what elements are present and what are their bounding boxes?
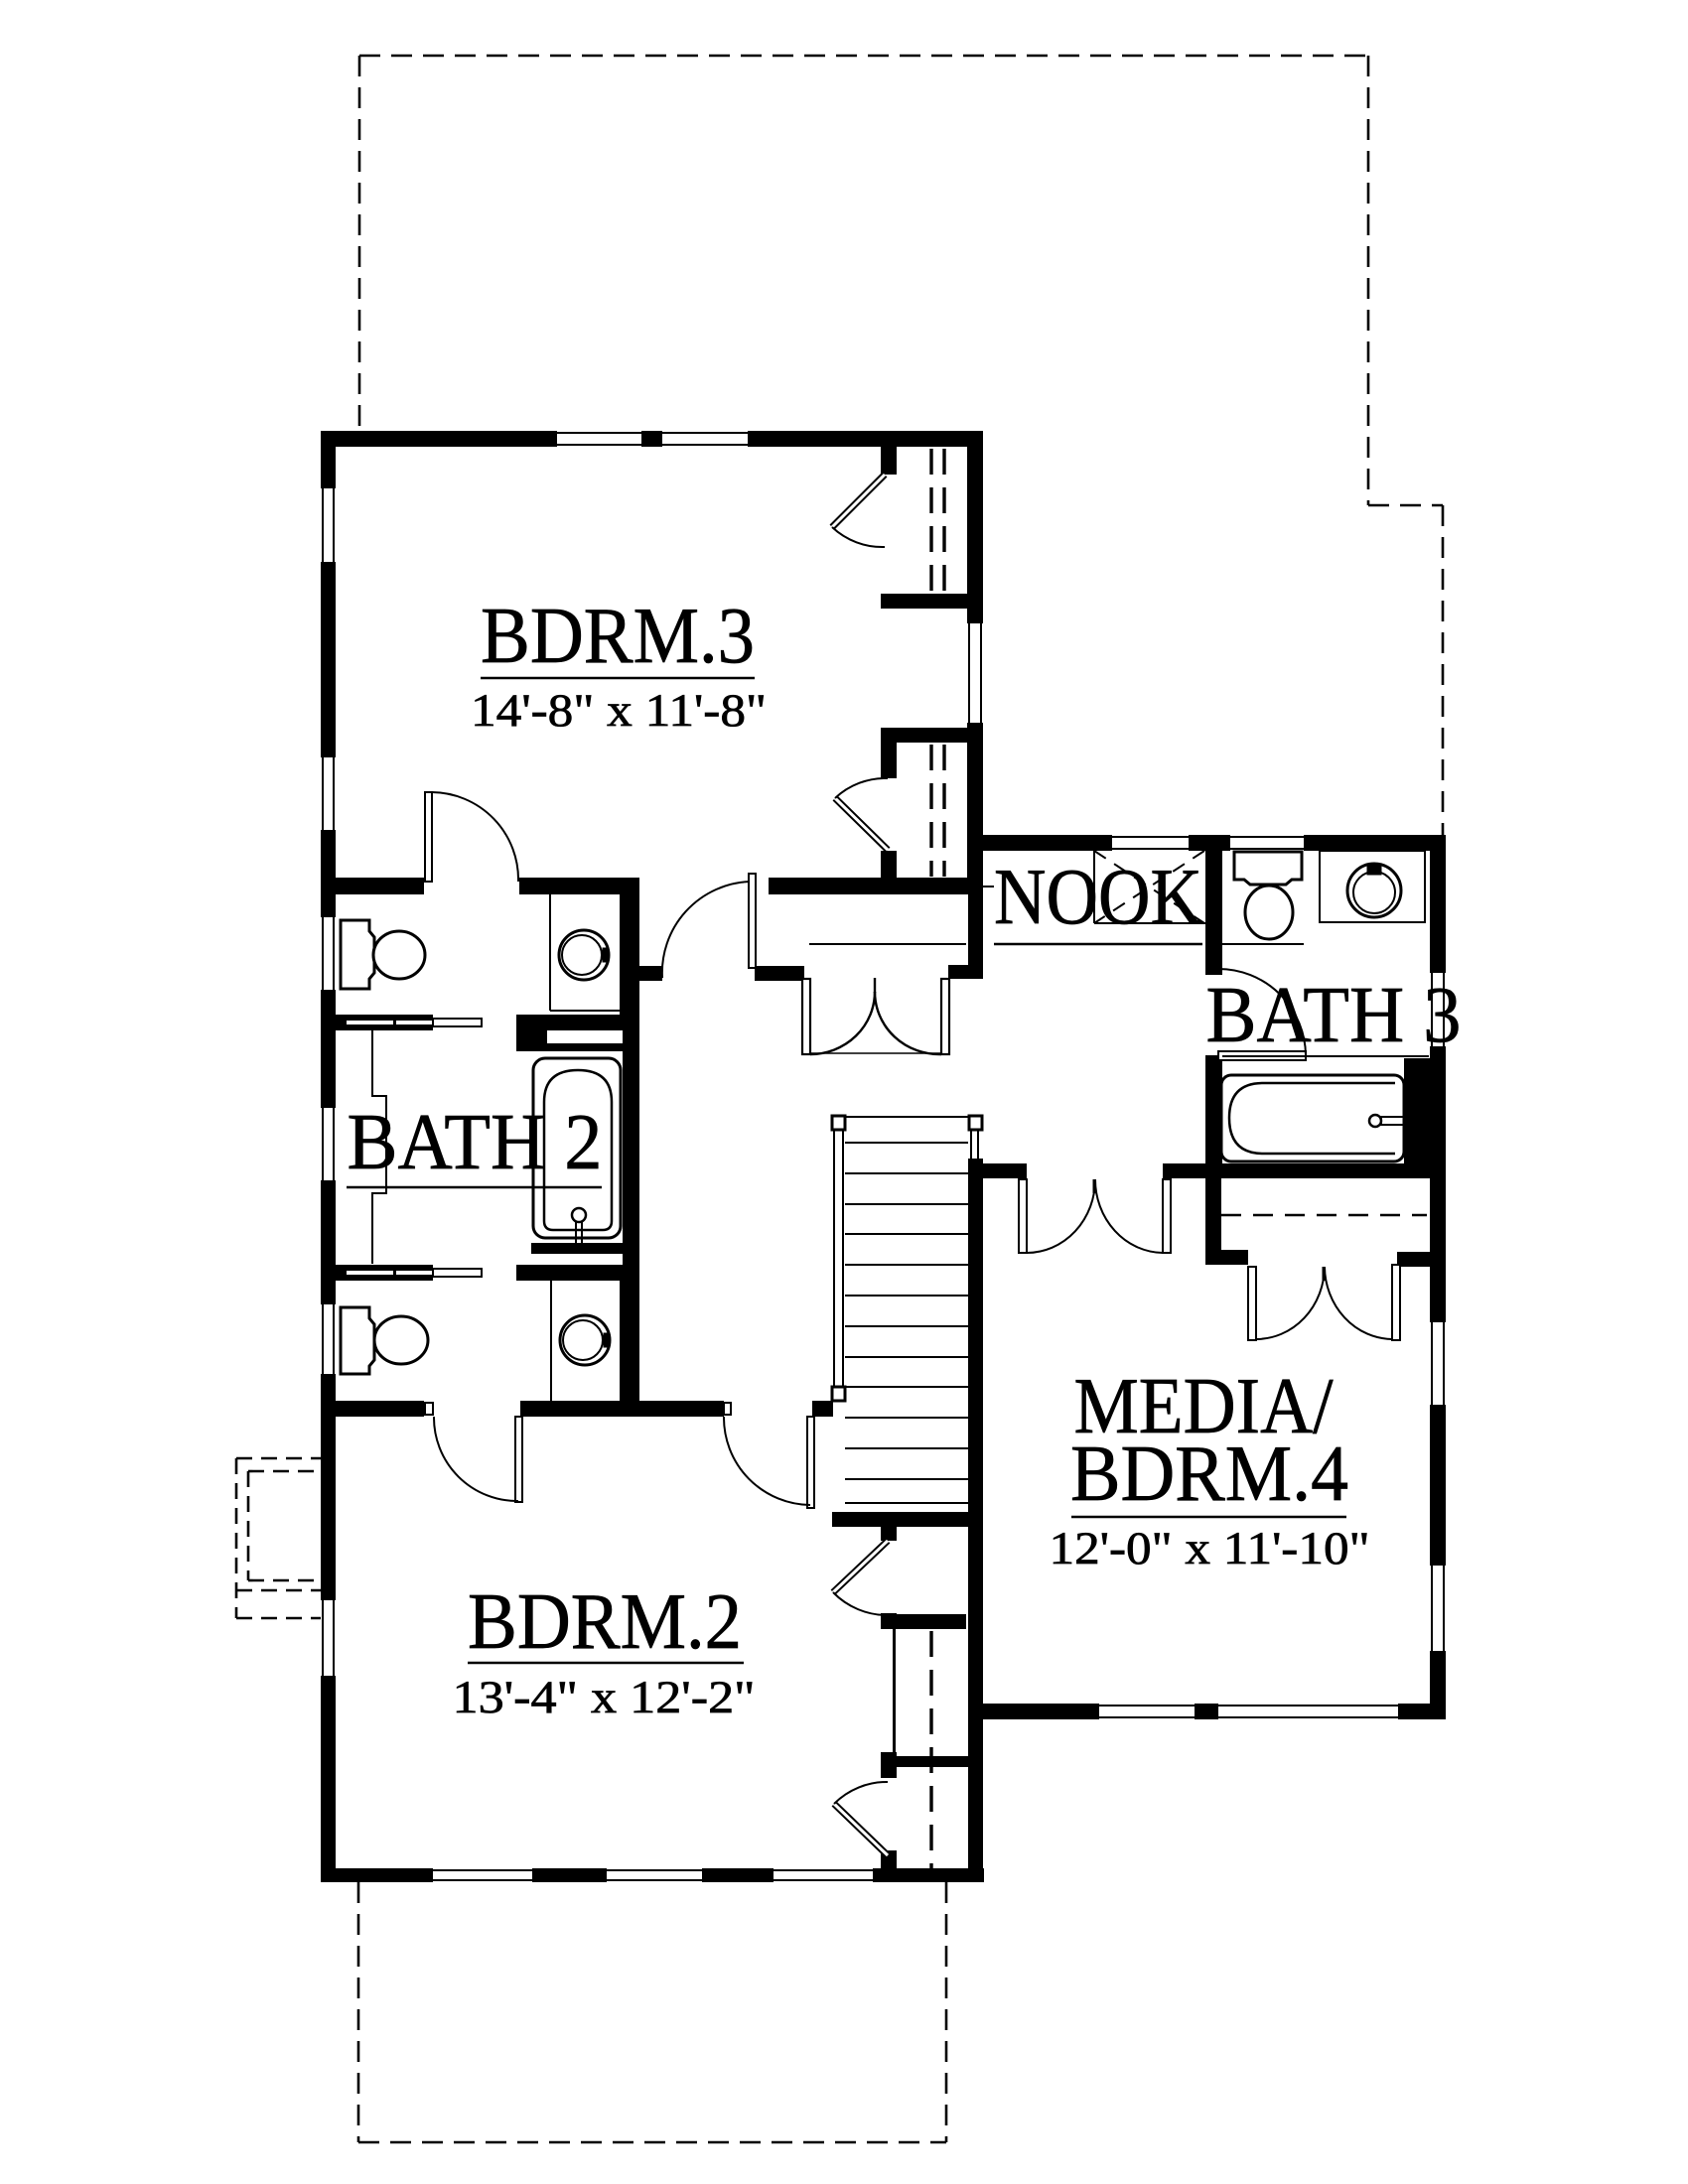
svg-text:12'-0" x 11'-10": 12'-0" x 11'-10" [1050,1523,1370,1574]
svg-text:BATH 2: BATH 2 [348,1099,603,1186]
svg-text:NOOK: NOOK [994,854,1202,941]
svg-text:BDRM.4: BDRM.4 [1070,1431,1348,1518]
svg-text:BATH 3: BATH 3 [1206,972,1462,1059]
svg-text:BDRM.2: BDRM.2 [468,1578,742,1666]
svg-text:13'-4" x 12'-2": 13'-4" x 12'-2" [453,1672,756,1723]
svg-text:BDRM.3: BDRM.3 [481,593,755,680]
svg-text:14'-8" x 11'-8": 14'-8" x 11'-8" [471,685,767,737]
